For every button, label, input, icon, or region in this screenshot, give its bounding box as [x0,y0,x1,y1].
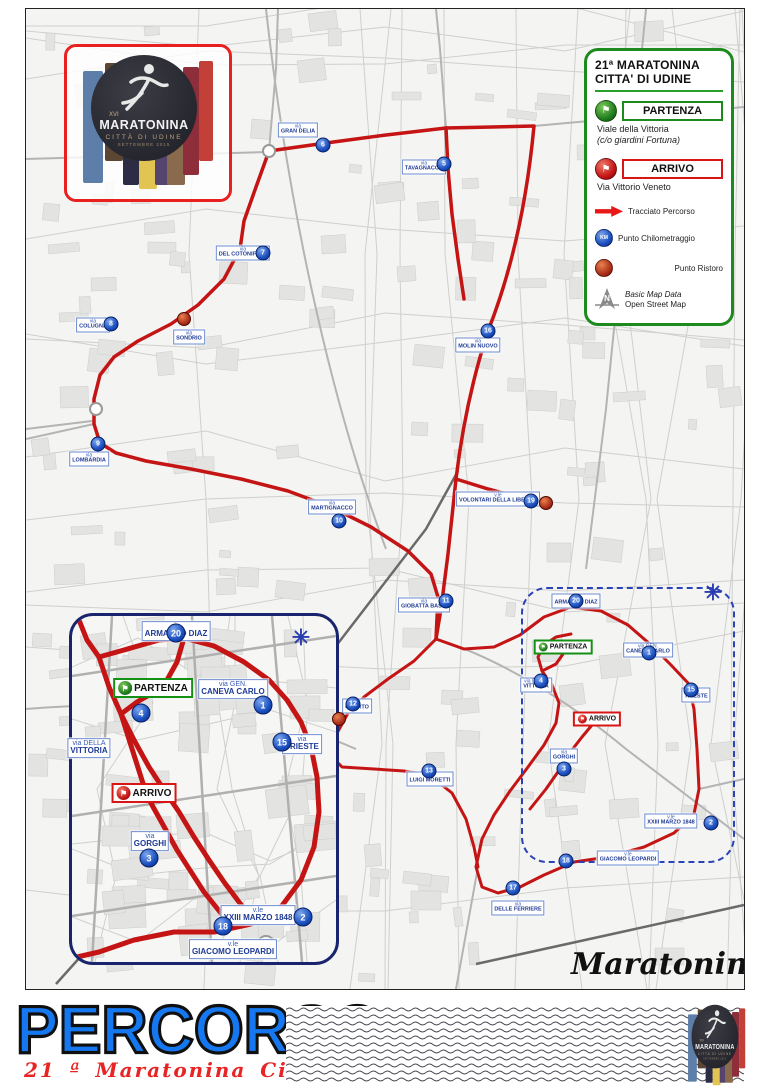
logo-bar [199,61,213,161]
km-marker: 6 [316,138,331,153]
footer-logo: XVI MARATONINA CITTÀ DI UDINE SETTEMBRE … [681,1000,749,1090]
race-route [94,126,540,639]
arrivo-flag: ⚑ARRIVO [573,712,621,727]
arrivo-icon: ⚑ [595,158,617,180]
km-marker: 11 [439,594,454,609]
km-marker: 2 [294,908,313,927]
street-label: viaMARTIGNACCO [308,499,356,514]
arrivo-flag: ⚑ARRIVO [112,783,177,803]
km-marker: 18 [559,854,574,869]
north-compass-icon: N [595,287,619,313]
partenza-dot-icon: ⚑ [118,681,132,695]
legend-panel: 21ª MARATONINA CITTA' DI UDINE ⚑ PARTENZ… [584,48,734,326]
logo-bar [739,1008,745,1068]
ristoro-marker [332,712,346,726]
route-label: Tracciato Percorso [628,207,695,216]
km-point-label: Punto Chilometraggio [618,234,695,243]
km-marker: 5 [437,157,452,172]
arrivo-label: ARRIVO [622,159,723,179]
street-label: v.leXXIII MARZO 1848 [644,813,697,828]
street-label: viaLOMBARDIA [69,451,109,466]
legend-title-underline [595,90,723,92]
ristoro-marker [177,312,191,326]
km-marker: 3 [557,762,572,777]
legend-title-line2: CITTA' DI UDINE [595,73,723,87]
ristoro-label: Punto Ristoro [675,264,723,273]
route-arrow-icon [595,205,623,217]
runner-icon [109,61,179,113]
km-point-icon: KM [595,229,613,247]
logo-circle: XVI MARATONINA CITTÀ DI UDINE SETTEMBRE … [91,55,197,161]
map-credit-line2: Open Street Map [625,300,686,309]
ristoro-marker [539,496,553,510]
km-marker: 17 [506,881,521,896]
maratonina-signature: Maratonina UD [571,947,745,982]
km-marker: 19 [524,494,539,509]
event-logo-box: XVI MARATONINA CITTÀ DI UDINE SETTEMBRE … [64,44,232,202]
km-marker: 1 [254,696,273,715]
street-label: v.leGIACOMO LEOPARDI [597,850,659,865]
km-marker: 4 [132,704,151,723]
km-marker: 15 [273,733,292,752]
km-marker: 2 [704,816,719,831]
street-label: v.leGIACOMO LEOPARDI [189,939,277,959]
route-poster: viaGRAN DELIAviaTAVAGNACCOviaDEL COTONIF… [0,0,772,1092]
km-marker: 20 [167,624,186,643]
ristoro-icon [595,259,613,277]
arrivo-dot-icon: ⚑ [578,715,587,724]
footer-event-logo: XVI MARATONINA CITTÀ DI UDINE SETTEMBRE … [681,1000,750,1088]
street-label: viaDELLE FERRIERE [491,900,544,915]
asterisk-marker: ✳ [292,625,310,651]
signature-script-text: Maratonina [571,947,745,982]
km-marker: 4 [534,674,549,689]
legend-title-line1: 21ª MARATONINA [595,59,723,73]
wavy-band [286,1006,744,1084]
partenza-flag: ⚑PARTENZA [113,678,193,698]
arrivo-dot-icon: ⚑ [117,786,131,800]
km-marker: 10 [332,514,347,529]
street-label: via DELLAVITTORIA [67,738,110,758]
event-logo: XVI MARATONINA CITTÀ DI UDINE SETTEMBRE … [67,47,223,193]
km-marker: 8 [104,317,119,332]
partenza-label: PARTENZA [622,101,723,121]
km-marker: 9 [91,437,106,452]
km-marker: 1 [642,646,657,661]
km-marker: 18 [214,917,233,936]
km-marker: 20 [569,594,584,609]
partenza-location-note: (c/o giardini Fortuna) [597,135,680,145]
street-label: viaGRAN DELIA [278,122,318,137]
km-marker: 16 [481,324,496,339]
logo-date: SETTEMBRE 2015 [118,142,171,147]
street-label: viaSONDRIO [173,329,205,344]
logo-circle: XVI MARATONINA CITTÀ DI UDINE SETTEMBRE … [692,1005,739,1069]
svg-text:N: N [604,294,610,303]
km-marker: 3 [140,849,159,868]
partenza-location: Viale della Vittoria [597,124,669,134]
arrivo-location: Via Vittorio Veneto [597,182,671,192]
partenza-flag: ⚑PARTENZA [534,640,593,655]
street-label: viaMOLIN NUOVO [455,337,500,352]
map-credit-line1: Basic Map Data [625,290,681,299]
partenza-icon: ⚑ [595,100,617,122]
asterisk-marker: ✳ [704,580,722,606]
partenza-dot-icon: ⚑ [539,643,548,652]
logo-city: CITTÀ DI UDINE [105,134,182,141]
km-marker: 7 [256,246,271,261]
km-marker: 12 [346,697,361,712]
runner-icon [699,1008,730,1039]
logo-name: MARATONINA [99,118,188,132]
km-marker: 15 [684,683,699,698]
km-marker: 13 [422,764,437,779]
